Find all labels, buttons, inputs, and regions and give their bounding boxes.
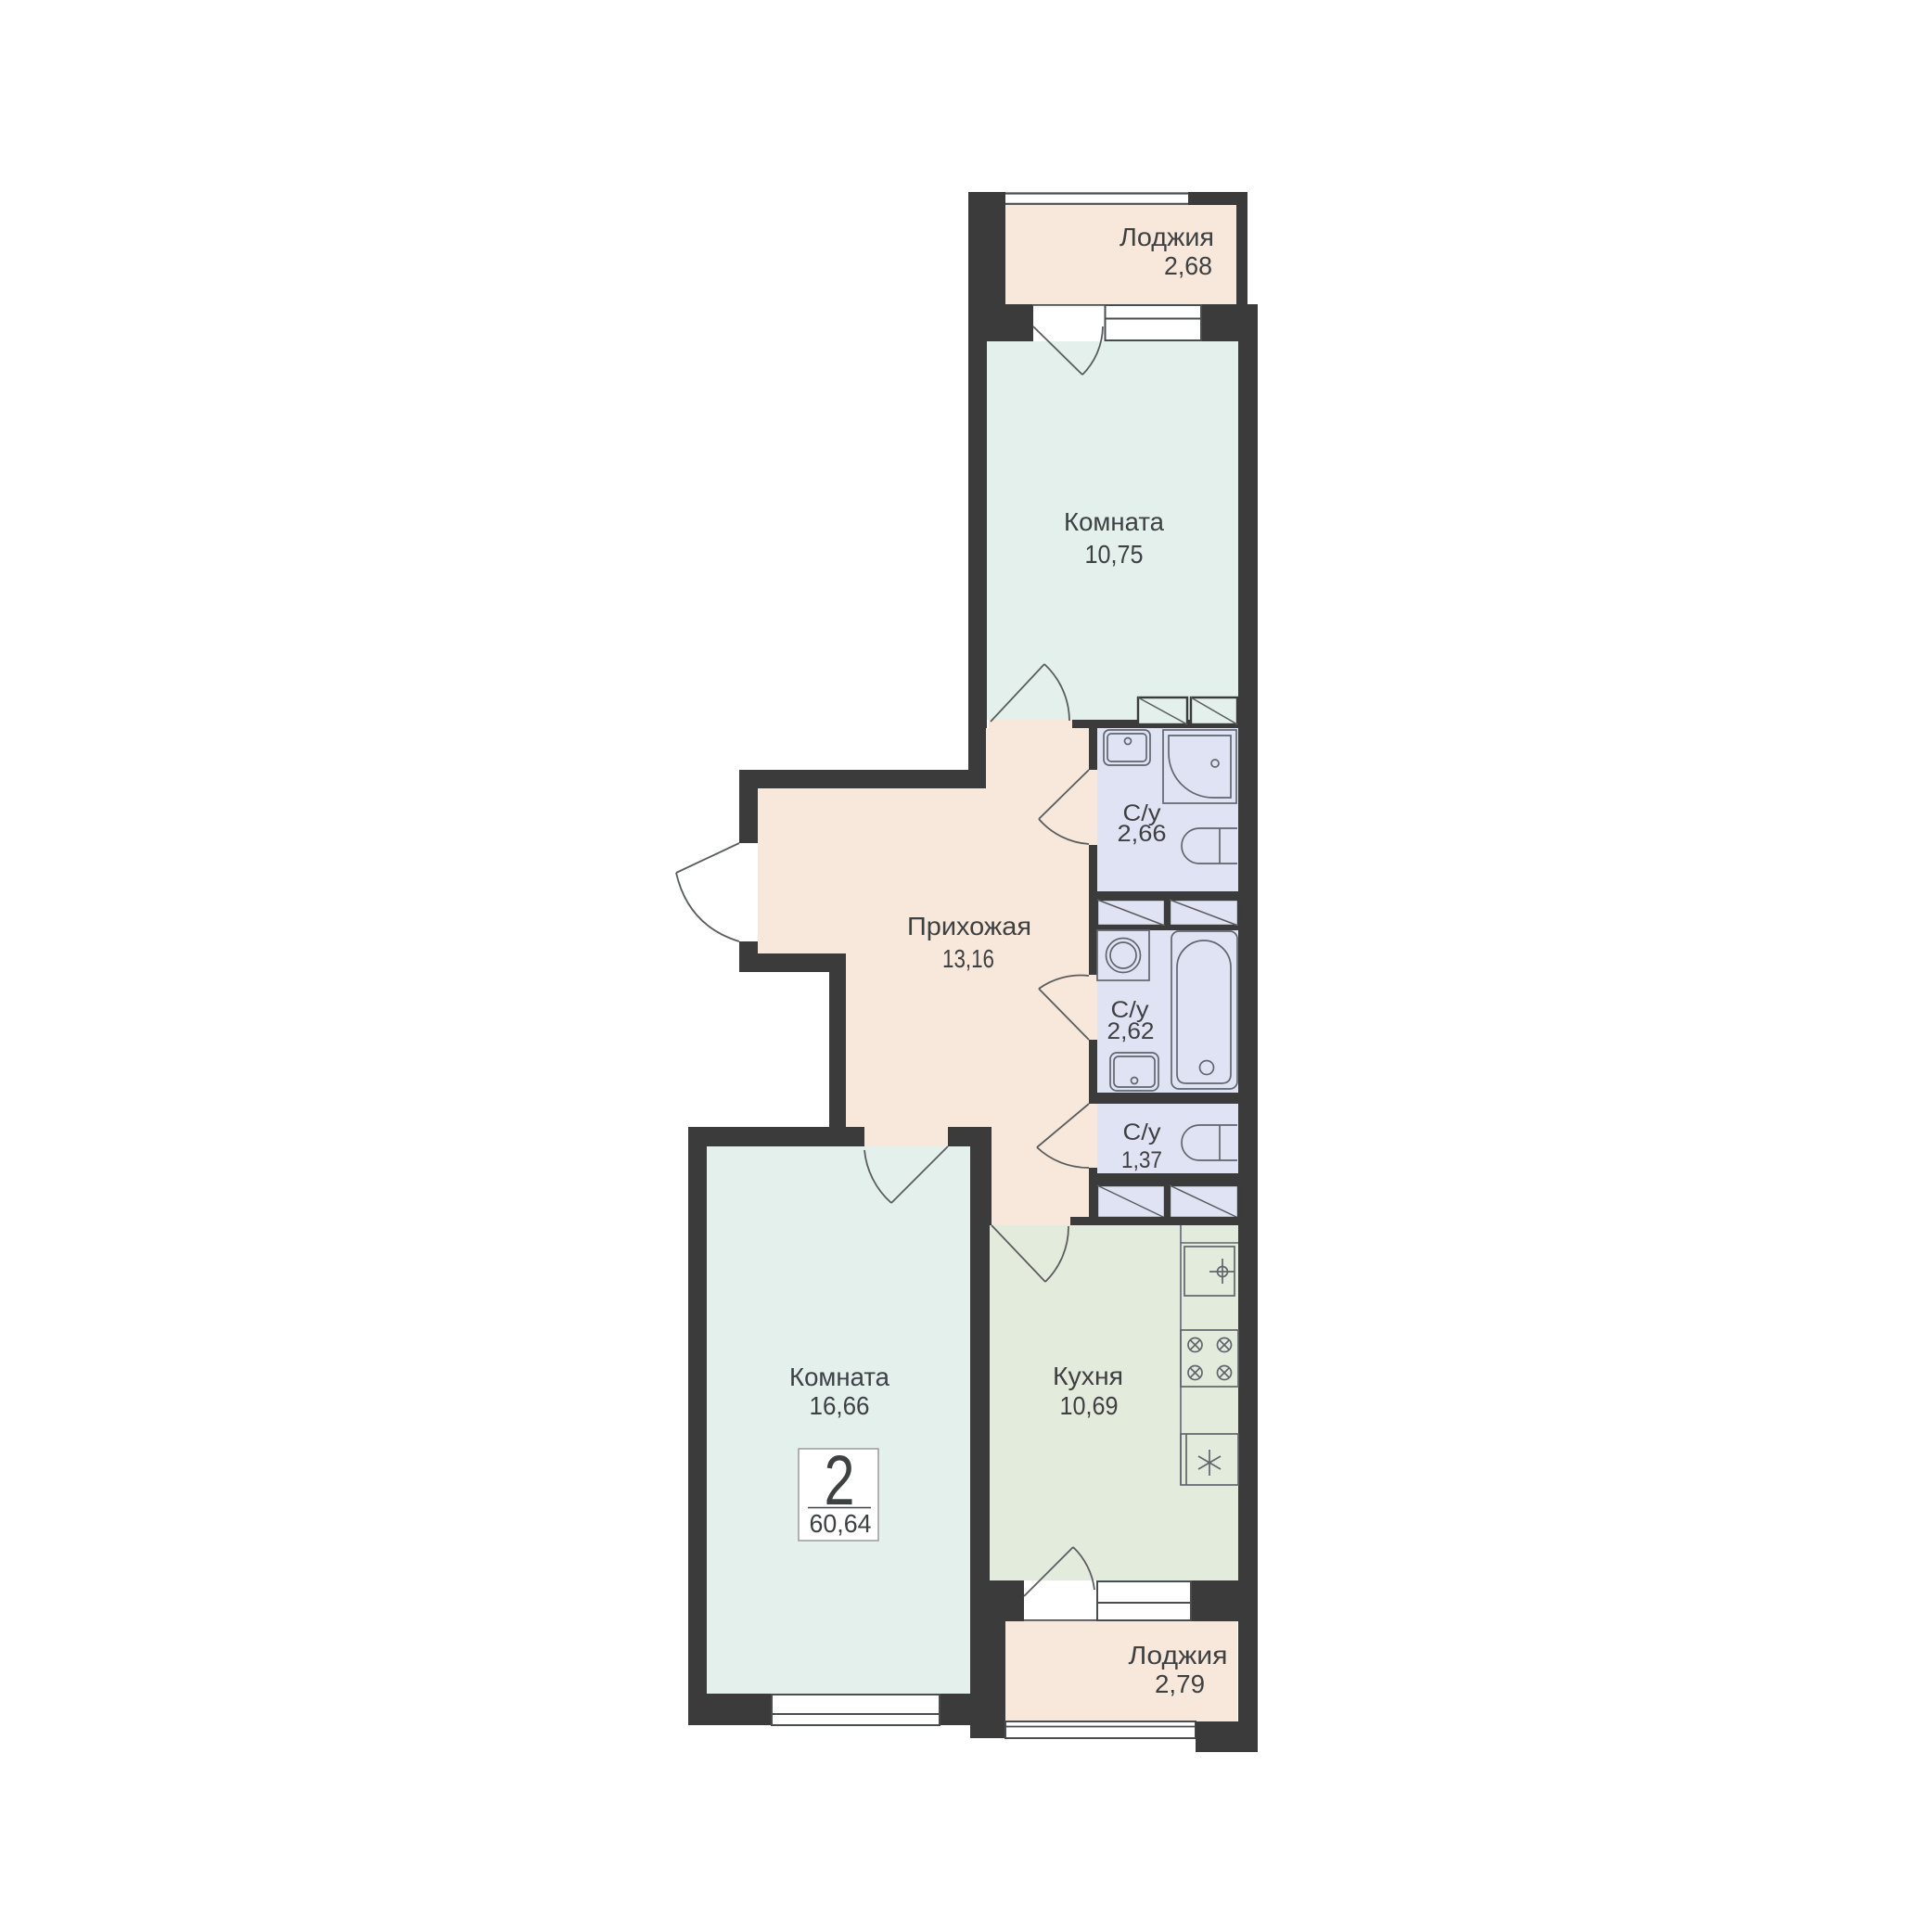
- svg-text:13,16: 13,16: [942, 944, 994, 973]
- svg-text:Комната: Комната: [789, 1363, 889, 1391]
- svg-text:10,75: 10,75: [1085, 540, 1144, 569]
- svg-text:2,79: 2,79: [1155, 1670, 1205, 1698]
- svg-text:60,64: 60,64: [810, 1509, 872, 1538]
- svg-text:Прихожая: Прихожая: [907, 912, 1031, 940]
- svg-text:Лоджия: Лоджия: [1129, 1641, 1228, 1670]
- svg-text:Кухня: Кухня: [1053, 1362, 1123, 1390]
- svg-text:2,66: 2,66: [1118, 821, 1167, 847]
- svg-text:2,68: 2,68: [1164, 251, 1212, 280]
- svg-text:С/у: С/у: [1123, 1120, 1162, 1145]
- svg-text:1,37: 1,37: [1121, 1147, 1162, 1173]
- svg-text:Лоджия: Лоджия: [1120, 223, 1214, 251]
- svg-text:Комната: Комната: [1064, 507, 1164, 536]
- svg-text:10,69: 10,69: [1060, 1391, 1119, 1420]
- svg-text:16,66: 16,66: [810, 1391, 870, 1420]
- svg-text:2,62: 2,62: [1107, 1018, 1155, 1044]
